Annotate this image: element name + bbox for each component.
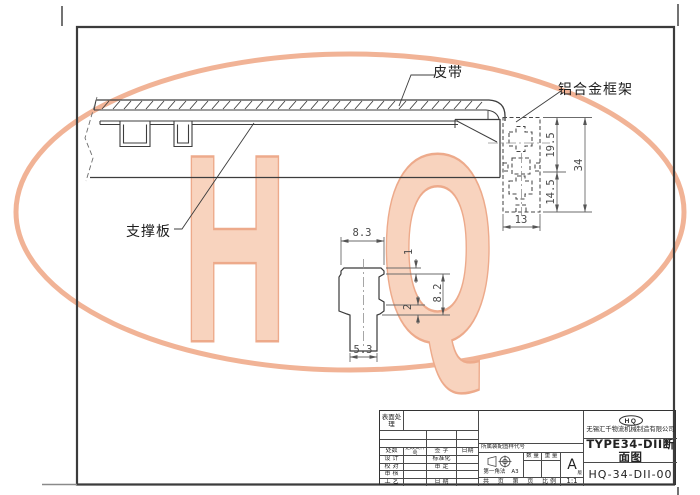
belt-label: 皮带 [433, 62, 463, 82]
weight-header: 重 量 [542, 453, 561, 461]
company-name: 无锡汇千物流机械制造有限公司 [586, 427, 674, 434]
scale-label: 比 例 [542, 479, 556, 485]
sheet-total-label: 共 [483, 479, 489, 485]
role-date: 日 期 [427, 479, 457, 487]
dim-1: 1 [403, 249, 415, 255]
main-section-view [85, 75, 592, 231]
title-block: 表面处理 处数 更改文件号 签 字 日期 设 计 标准化 校 对 审 定 审 核… [379, 410, 676, 485]
surface-treatment-label: 表面处理 [380, 411, 404, 431]
detail-outline [339, 268, 384, 351]
rev-sign-header: 签 字 [427, 448, 457, 456]
svg-text:HQ: HQ [624, 418, 637, 425]
drawing-sheet: H Q [0, 0, 700, 495]
dim-8-3: 8.3 [353, 227, 372, 239]
sheet-page-label: 页 [498, 479, 504, 485]
scale-value: 1:1 [561, 478, 584, 486]
quantity-value [524, 461, 542, 478]
watermark-letters: H Q [182, 101, 494, 397]
belt-hatching [102, 101, 482, 109]
revision-row-cell [380, 431, 427, 440]
empty-cell [457, 479, 479, 487]
empty-cell [479, 411, 584, 444]
sheet-no-label: 第 [513, 479, 519, 485]
empty-cell [457, 464, 479, 472]
drawing-number: HQ-34-DII-00 [584, 463, 677, 486]
belt-outline [94, 100, 505, 121]
dim-2: 2 [402, 304, 414, 310]
support-plate-label: 支撑板 [126, 221, 171, 241]
conveyor-body [90, 119, 500, 178]
revision-letter: A [567, 458, 577, 473]
paper-size: A3 [511, 470, 518, 476]
weight-value [542, 461, 561, 478]
role-standard: 标准化 [427, 456, 457, 464]
revision-row-cell [457, 440, 479, 449]
empty-cell [404, 471, 427, 479]
revision-row-cell [427, 431, 457, 440]
empty-cell [457, 456, 479, 464]
aluminum-frame-label: 铝合金框架 [558, 79, 633, 99]
revision-row-cell [380, 440, 427, 449]
dim-34: 34 [573, 159, 585, 172]
role-approve: 审 定 [427, 464, 457, 472]
projection-cell: 第一角法 A3 [479, 453, 524, 478]
dim-13: 13 [515, 214, 528, 226]
quantity-header: 数 量 [524, 453, 542, 461]
revision-row-cell [427, 440, 457, 449]
projection-method-label: 第一角法 [483, 470, 505, 476]
empty-cell [427, 471, 457, 479]
hq-logo-icon: HQ [618, 415, 644, 426]
empty-cell [404, 464, 427, 472]
dim-14-5: 14.5 [545, 179, 557, 204]
aluminum-profile [503, 118, 540, 213]
dim-5-3: 5.3 [354, 344, 373, 356]
revision-row-cell [457, 431, 479, 440]
role-process: 工 艺 [380, 479, 404, 487]
first-angle-projection-icon [486, 455, 516, 468]
empty-cell [457, 471, 479, 479]
revision-suffix: 版 [578, 472, 583, 477]
watermark-ellipse [16, 54, 684, 370]
role-design: 设 计 [380, 456, 404, 464]
belongs-drawing-code-label: 所属装配图样代号 [479, 444, 584, 453]
profile-centerlines [488, 143, 550, 216]
rev-count-header: 处数 [380, 448, 404, 456]
dim-8-2: 8.2 [432, 284, 444, 303]
sheet-page-label: 页 [527, 479, 533, 485]
empty-cell [404, 456, 427, 464]
drawing-title: TYPE34-DII断面图 [584, 439, 677, 463]
empty-cell [404, 411, 479, 431]
revision-letter-cell: A 版 [561, 453, 584, 478]
support-plate [100, 121, 458, 147]
empty-cell [404, 479, 427, 487]
role-review: 审 核 [380, 471, 404, 479]
sheet-count-row: 共 页 第 页 比 例 [479, 478, 561, 486]
company-cell: HQ 无锡汇千物流机械制造有限公司 [584, 411, 677, 439]
dim-19-5: 19.5 [545, 132, 557, 157]
leader-lines [174, 75, 561, 229]
break-line [85, 97, 97, 181]
role-check: 校 对 [380, 464, 404, 472]
rev-date-header: 日期 [457, 448, 479, 456]
rev-doc-header: 更改文件号 [404, 448, 427, 456]
